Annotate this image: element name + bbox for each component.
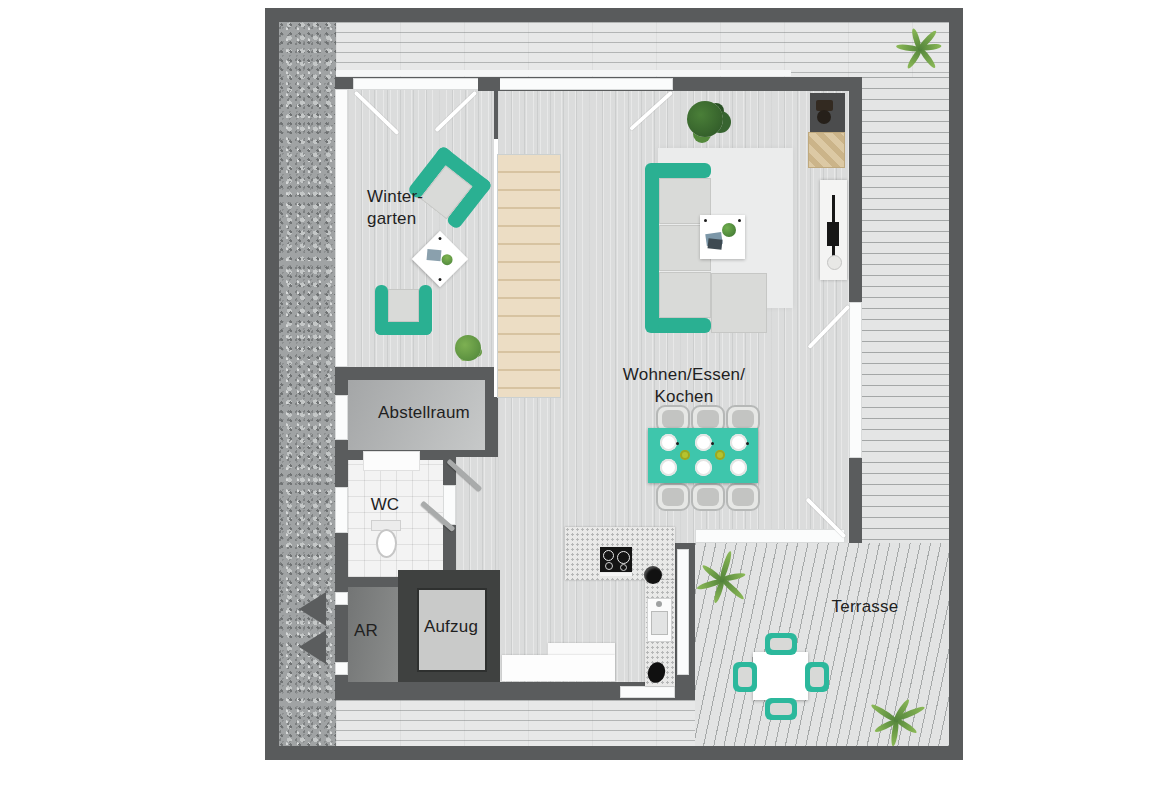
cooktop — [600, 547, 632, 572]
right-glazed-wall — [849, 302, 862, 458]
wall-sill-line — [336, 70, 791, 76]
tv-board — [820, 180, 847, 280]
armchair — [375, 285, 432, 335]
site-boundary-wall: Winter- garten Abstellraum WC AR Aufzug … — [265, 8, 963, 760]
room-label-terrasse: Terrasse — [795, 596, 935, 618]
terrace-chair — [733, 662, 757, 692]
speaker — [827, 255, 842, 270]
wall-post — [478, 77, 500, 91]
tv-console — [827, 222, 839, 246]
sofa-cushion — [659, 272, 711, 318]
label-line: Kochen — [584, 386, 784, 408]
entrance-chevron-icon — [299, 630, 326, 664]
deck-bottom — [336, 700, 695, 746]
room-label-wc: WC — [345, 494, 425, 516]
label-line: Winter- — [367, 186, 423, 208]
sofa-chaise — [711, 273, 767, 333]
kitchen-window-wall — [677, 549, 689, 675]
wood-sideboard — [808, 132, 845, 168]
kitchen-sink — [647, 598, 672, 642]
room-label-ar: AR — [336, 620, 396, 642]
ar-door-slot — [335, 662, 348, 675]
fern-plant — [693, 548, 750, 612]
fireplace-detail — [817, 110, 831, 124]
magazine — [427, 249, 442, 261]
top-glazed-wall — [353, 78, 673, 90]
wc-floor — [348, 460, 443, 577]
bench — [548, 643, 615, 655]
faucet — [656, 601, 662, 607]
label-line: garten — [367, 208, 423, 230]
round-sink — [644, 566, 662, 584]
room-label-aufzug: Aufzug — [391, 616, 511, 638]
bench — [502, 655, 615, 681]
terrace-glazed-wall — [695, 529, 845, 543]
large-plant — [687, 101, 723, 137]
room-label-wohnen: Wohnen/Essen/ Kochen — [584, 364, 784, 408]
terrace-chair — [765, 698, 797, 720]
magazine — [708, 238, 723, 249]
deck-top — [336, 22, 949, 77]
coffee-table — [700, 215, 745, 259]
staircase — [498, 155, 560, 397]
cooktop-controls — [600, 573, 632, 576]
dining-chair — [656, 483, 690, 511]
wintergarten-left-glazing — [335, 89, 348, 367]
corner-plant — [898, 26, 942, 72]
bottom-glazed-door — [620, 686, 675, 698]
fireplace-block — [810, 93, 845, 132]
fern-plant — [865, 692, 927, 746]
dining-chair — [726, 483, 760, 511]
sofa-back — [645, 165, 659, 331]
floor-plan: Winter- garten Abstellraum WC AR Aufzug … — [0, 0, 1170, 785]
site-area: Winter- garten Abstellraum WC AR Aufzug … — [279, 22, 949, 746]
label-line: Wohnen/Essen/ — [584, 364, 784, 386]
terrace-table — [753, 652, 808, 700]
terrace-chair — [765, 633, 797, 655]
terrace-chair — [805, 662, 829, 692]
wc-vanity — [363, 451, 420, 471]
ar-door-slot — [335, 592, 348, 605]
abstellraum-window — [335, 395, 348, 440]
table-plant — [439, 252, 455, 268]
table-plant — [722, 223, 736, 237]
dining-table — [648, 428, 758, 483]
entrance-chevron-icon — [299, 592, 326, 626]
room-label-wintergarten: Winter- garten — [367, 186, 423, 230]
small-plant — [455, 335, 481, 361]
toilet-bowl — [376, 529, 397, 558]
deck-right — [862, 77, 949, 543]
dining-chair — [691, 483, 725, 511]
room-label-abstellraum: Abstellraum — [354, 402, 494, 424]
